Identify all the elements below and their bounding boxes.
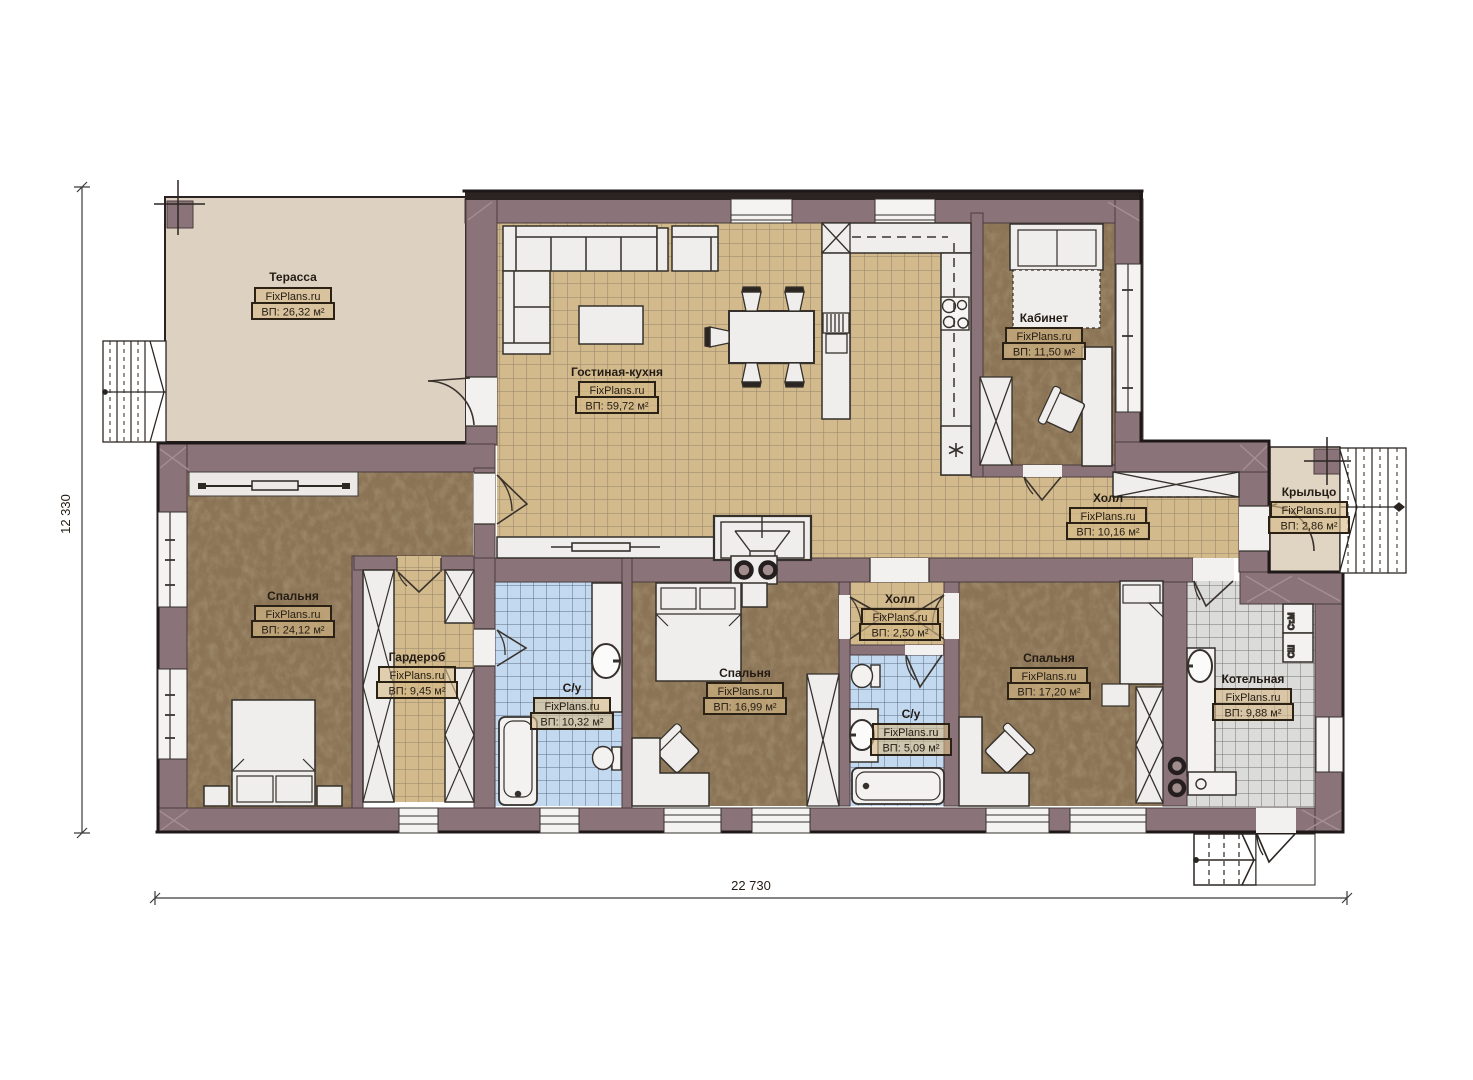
svg-text:FixPlans.ru: FixPlans.ru (717, 686, 772, 698)
svg-text:ВП: 9,45 м²: ВП: 9,45 м² (388, 686, 445, 698)
svg-text:ВП: 5,09 м²: ВП: 5,09 м² (882, 743, 939, 755)
svg-text:ВП: 26,32 м²: ВП: 26,32 м² (261, 307, 325, 319)
svg-text:FixPlans.ru: FixPlans.ru (1080, 511, 1135, 523)
svg-text:Спальня: Спальня (1023, 651, 1075, 665)
svg-text:Спальня: Спальня (719, 666, 771, 680)
svg-text:ВП: 10,32 м²: ВП: 10,32 м² (540, 717, 604, 729)
svg-text:Крыльцо: Крыльцо (1282, 485, 1337, 499)
svg-text:FixPlans.ru: FixPlans.ru (1225, 692, 1280, 704)
svg-text:FixPlans.ru: FixPlans.ru (389, 670, 444, 682)
svg-text:FixPlans.ru: FixPlans.ru (883, 727, 938, 739)
svg-text:ВП: 9,88 м²: ВП: 9,88 м² (1224, 708, 1281, 720)
svg-text:Ст.М: Ст.М (1287, 612, 1296, 630)
svg-text:Гардероб: Гардероб (389, 650, 446, 664)
svg-text:FixPlans.ru: FixPlans.ru (265, 609, 320, 621)
svg-text:ВП: 10,16 м²: ВП: 10,16 м² (1076, 527, 1140, 539)
svg-text:22 730: 22 730 (731, 878, 771, 893)
svg-text:ВП: 11,50 м²: ВП: 11,50 м² (1013, 347, 1076, 359)
svg-text:ВП: 2,86 м²: ВП: 2,86 м² (1280, 521, 1337, 533)
svg-text:12 330: 12 330 (58, 494, 73, 534)
svg-text:ВП: 24,12 м²: ВП: 24,12 м² (261, 625, 325, 637)
svg-text:FixPlans.ru: FixPlans.ru (265, 291, 320, 303)
svg-text:Спальня: Спальня (267, 589, 319, 603)
svg-text:FixPlans.ru: FixPlans.ru (589, 385, 644, 397)
svg-text:ВП: 59,72 м²: ВП: 59,72 м² (585, 401, 649, 413)
svg-text:ВП: 17,20 м²: ВП: 17,20 м² (1017, 687, 1081, 699)
svg-text:ВП: 2,50 м²: ВП: 2,50 м² (871, 628, 928, 640)
svg-text:Котельная: Котельная (1222, 672, 1285, 686)
svg-text:FixPlans.ru: FixPlans.ru (1016, 331, 1071, 343)
svg-text:Холл: Холл (885, 592, 915, 606)
svg-text:С/у: С/у (902, 707, 921, 721)
svg-text:Гостиная-кухня: Гостиная-кухня (571, 365, 663, 379)
svg-text:Терасса: Терасса (269, 270, 317, 284)
svg-text:Холл: Холл (1093, 491, 1123, 505)
svg-text:С/у: С/у (563, 681, 582, 695)
svg-text:FixPlans.ru: FixPlans.ru (1021, 671, 1076, 683)
svg-text:FixPlans.ru: FixPlans.ru (872, 612, 927, 624)
svg-text:FixPlans.ru: FixPlans.ru (544, 701, 599, 713)
svg-text:FixPlans.ru: FixPlans.ru (1281, 505, 1336, 517)
svg-text:СШ: СШ (1287, 645, 1296, 658)
svg-text:Кабинет: Кабинет (1020, 311, 1069, 325)
svg-text:ВП: 16,99 м²: ВП: 16,99 м² (713, 702, 777, 714)
